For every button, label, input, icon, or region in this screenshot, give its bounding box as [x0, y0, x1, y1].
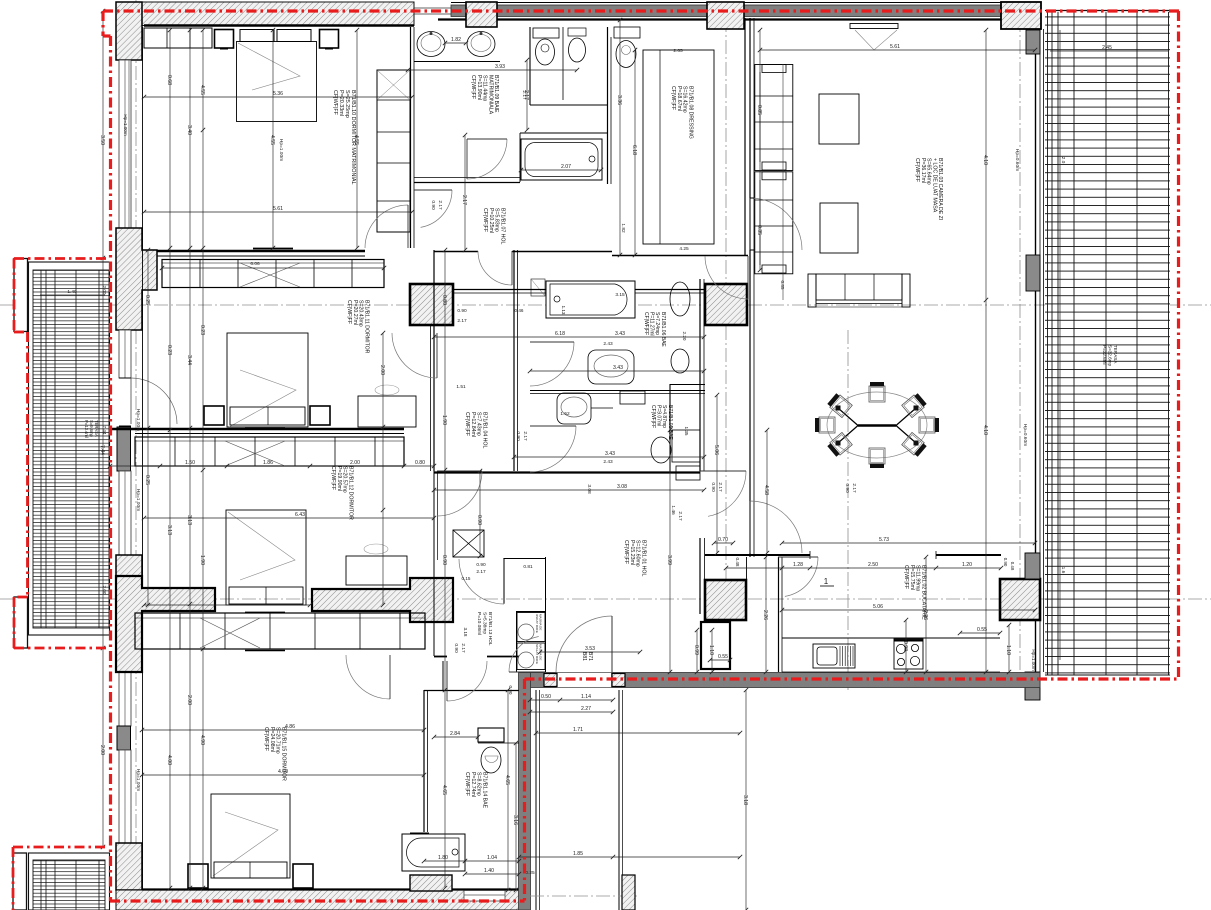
svg-text:3.16: 3.16: [512, 815, 518, 825]
svg-text:0.85: 0.85: [780, 281, 785, 290]
svg-text:1.40: 1.40: [484, 868, 494, 874]
svg-text:2.20: 2.20: [682, 332, 687, 341]
svg-text:1.80: 1.80: [438, 855, 448, 861]
svg-text:2.17: 2.17: [717, 482, 723, 492]
svg-text:3.50: 3.50: [99, 135, 105, 145]
svg-text:3.99: 3.99: [666, 555, 672, 565]
svg-text:3.43: 3.43: [615, 331, 625, 337]
svg-text:CF|WF|FF: CF|WF|FF: [330, 466, 336, 490]
svg-text:1.82: 1.82: [451, 37, 461, 43]
svg-text:0.23: 0.23: [166, 345, 172, 355]
svg-text:3.18: 3.18: [742, 795, 748, 805]
svg-text:Hp=1.00m: Hp=1.00m: [1031, 649, 1036, 670]
svg-text:CF|WF|FF: CF|WF|FF: [482, 208, 488, 232]
svg-text:0.85: 0.85: [756, 105, 762, 115]
svg-text:2.17: 2.17: [460, 643, 466, 653]
svg-text:S=32.6mp: S=32.6mp: [1107, 345, 1112, 367]
svg-text:0.90: 0.90: [476, 515, 482, 525]
svg-text:0.90: 0.90: [476, 562, 486, 568]
svg-text:Hp=0.60m: Hp=0.60m: [1022, 424, 1028, 446]
svg-text:2.26: 2.26: [762, 610, 768, 620]
svg-text:1.13: 1.13: [561, 306, 566, 315]
svg-text:3.18: 3.18: [463, 628, 468, 637]
svg-text:1.46: 1.46: [670, 505, 676, 515]
svg-text:5.36: 5.36: [273, 91, 283, 97]
svg-text:1.51: 1.51: [456, 384, 466, 390]
svg-text:0.46: 0.46: [515, 308, 524, 313]
svg-text:3.36: 3.36: [616, 95, 622, 105]
svg-text:0.25: 0.25: [525, 870, 535, 876]
svg-text:CF|WF|FF: CF|WF|FF: [464, 772, 470, 796]
svg-text:2.17: 2.17: [522, 431, 528, 441]
svg-text:1.82: 1.82: [620, 223, 626, 233]
svg-text:3.08: 3.08: [586, 484, 592, 494]
svg-text:Hp=0.60m: Hp=0.60m: [1014, 149, 1020, 171]
svg-text:4.10: 4.10: [982, 425, 988, 435]
svg-text:CF|WF|FF: CF|WF|FF: [623, 540, 629, 564]
svg-text:P=10.08ml: P=10.08ml: [476, 612, 482, 635]
svg-text:S=5.38mp: S=5.38mp: [481, 612, 487, 634]
svg-text:0.48: 0.48: [735, 558, 740, 567]
svg-text:0.90: 0.90: [453, 643, 459, 653]
svg-text:TERASA: TERASA: [1113, 345, 1118, 364]
svg-text:4.65: 4.65: [504, 775, 510, 785]
svg-text:2.17: 2.17: [461, 195, 467, 205]
svg-text:CF|WF|FF: CF|WF|FF: [643, 312, 649, 335]
svg-text:0.99: 0.99: [693, 645, 699, 655]
svg-text:1.28: 1.28: [793, 562, 803, 568]
svg-text:4.58: 4.58: [763, 485, 769, 495]
svg-text:3.13: 3.13: [166, 525, 172, 535]
svg-text:Hp=1.00m: Hp=1.00m: [278, 139, 284, 161]
svg-text:1.90: 1.90: [199, 555, 205, 565]
svg-text:6.06: 6.06: [250, 261, 260, 267]
svg-text:2.17: 2.17: [457, 318, 467, 324]
svg-text:0.90: 0.90: [508, 686, 513, 695]
svg-text:1.40: 1.40: [67, 289, 77, 295]
svg-text:1.20: 1.20: [962, 562, 972, 568]
svg-text:0.70: 0.70: [718, 537, 728, 543]
svg-text:0.98: 0.98: [902, 641, 908, 651]
svg-text:6.18: 6.18: [631, 145, 637, 155]
svg-text:CF|WF|FF: CF|WF|FF: [650, 405, 656, 428]
svg-text:3.40: 3.40: [186, 125, 192, 135]
svg-text:0.15: 0.15: [462, 576, 471, 581]
svg-text:2.00: 2.00: [99, 745, 105, 755]
svg-text:1.50: 1.50: [185, 460, 195, 466]
svg-text:0.50: 0.50: [541, 694, 551, 700]
svg-text:Hp=1.00m: Hp=1.00m: [135, 409, 141, 431]
svg-text:5.06: 5.06: [713, 445, 719, 455]
svg-text:3.13: 3.13: [186, 515, 192, 525]
svg-text:2.17: 2.17: [851, 483, 857, 493]
svg-text:2.0: 2.0: [1060, 157, 1066, 164]
svg-text:5.61: 5.61: [890, 44, 900, 50]
svg-text:2.17: 2.17: [437, 200, 443, 210]
svg-text:0.48: 0.48: [1010, 562, 1015, 571]
svg-text:0.25: 0.25: [144, 295, 150, 305]
svg-text:USCAT RUFE: USCAT RUFE: [535, 614, 539, 633]
svg-text:3.15: 3.15: [615, 292, 625, 298]
svg-text:CF|WF|FF: CF|WF|FF: [470, 75, 476, 99]
svg-text:CF|WF|FF: CF|WF|FF: [263, 727, 269, 751]
svg-text:0.55: 0.55: [977, 627, 987, 633]
svg-text:3.43: 3.43: [613, 365, 623, 371]
svg-text:2.27: 2.27: [581, 706, 591, 712]
svg-text:1.86: 1.86: [263, 460, 273, 466]
svg-text:3.08: 3.08: [617, 484, 627, 490]
svg-text:1.52: 1.52: [560, 411, 570, 417]
svg-text:0.90: 0.90: [457, 308, 467, 314]
svg-text:2.17: 2.17: [677, 511, 683, 521]
svg-text:3.93: 3.93: [495, 64, 505, 70]
svg-text:1.04: 1.04: [487, 855, 497, 861]
svg-text:1.14: 1.14: [581, 694, 591, 700]
svg-text:2.50: 2.50: [868, 562, 878, 568]
svg-text:2.43: 2.43: [603, 341, 613, 347]
svg-text:6.18: 6.18: [555, 331, 565, 337]
svg-text:CF|WF|FF: CF|WF|FF: [464, 412, 470, 436]
svg-text:0.68: 0.68: [166, 75, 172, 85]
svg-text:0.90: 0.90: [515, 431, 521, 441]
svg-text:0.35: 0.35: [756, 225, 762, 235]
svg-text:4.10: 4.10: [982, 155, 988, 165]
svg-text:2.17: 2.17: [521, 90, 527, 100]
svg-text:1.71: 1.71: [573, 727, 583, 733]
svg-text:1.35: 1.35: [684, 427, 689, 436]
svg-text:2.43: 2.43: [603, 459, 613, 465]
svg-text:B71/B1.13 HOL: B71/B1.13 HOL: [487, 612, 493, 646]
svg-text:3.44: 3.44: [186, 355, 192, 365]
svg-text:0.23: 0.23: [199, 325, 205, 335]
svg-text:4.55: 4.55: [199, 85, 205, 95]
svg-text:7.44: 7.44: [99, 445, 105, 455]
svg-text:2.00: 2.00: [186, 695, 192, 705]
svg-text:0.90: 0.90: [441, 555, 447, 565]
svg-text:4.65: 4.65: [441, 785, 447, 795]
svg-text:Hp=1.00m: Hp=1.00m: [123, 114, 128, 135]
svg-text:5.61: 5.61: [273, 206, 283, 212]
svg-text:Hp=1.00m: Hp=1.00m: [135, 489, 141, 511]
svg-text:2.00: 2.00: [379, 365, 385, 375]
svg-text:4.00: 4.00: [166, 755, 172, 765]
svg-text:2.45: 2.45: [1102, 45, 1112, 51]
svg-text:1: 1: [824, 577, 829, 586]
svg-text:0.90: 0.90: [1003, 558, 1008, 567]
svg-text:P=13.4ml: P=13.4ml: [84, 420, 89, 438]
svg-text:Hp=1.00m: Hp=1.00m: [135, 769, 141, 791]
svg-text:1.85: 1.85: [573, 851, 583, 857]
svg-text:5.06: 5.06: [873, 604, 883, 610]
svg-text:0.81: 0.81: [523, 564, 533, 570]
svg-text:1.6: 1.6: [1060, 567, 1066, 574]
svg-text:5.73: 5.73: [879, 537, 889, 543]
svg-text:0.90: 0.90: [430, 200, 436, 210]
svg-text:2.65: 2.65: [673, 48, 683, 54]
svg-text:1.10: 1.10: [708, 645, 714, 655]
svg-text:P=32.6ml: P=32.6ml: [1102, 345, 1107, 365]
svg-text:CF|WF|FF: CF|WF|FF: [332, 90, 338, 116]
svg-text:B81: B81: [581, 652, 587, 661]
svg-text:0.90: 0.90: [844, 483, 850, 493]
svg-text:3.53: 3.53: [585, 646, 595, 652]
svg-text:4.90: 4.90: [199, 735, 205, 745]
svg-text:2.17: 2.17: [476, 569, 486, 575]
svg-text:1.10: 1.10: [1005, 645, 1011, 655]
svg-text:6.43: 6.43: [295, 512, 305, 518]
svg-text:0.80: 0.80: [441, 295, 447, 305]
svg-text:CF|WF|FF: CF|WF|FF: [914, 158, 920, 182]
svg-text:4.25: 4.25: [679, 246, 689, 252]
svg-text:CF|WF|FF: CF|WF|FF: [903, 565, 909, 589]
svg-text:4.55: 4.55: [269, 135, 275, 145]
svg-text:CF|WF|FF: CF|WF|FF: [670, 86, 676, 110]
svg-text:2.07: 2.07: [561, 164, 571, 170]
svg-text:0.90: 0.90: [710, 482, 716, 492]
svg-text:3.43: 3.43: [605, 451, 615, 457]
svg-text:0.80: 0.80: [415, 460, 425, 466]
svg-text:1.90: 1.90: [441, 415, 447, 425]
svg-text:0.55: 0.55: [718, 654, 728, 660]
svg-text:2.84: 2.84: [450, 731, 460, 737]
svg-text:CF|WF|FF: CF|WF|FF: [346, 300, 352, 324]
svg-text:0.25: 0.25: [144, 475, 150, 485]
